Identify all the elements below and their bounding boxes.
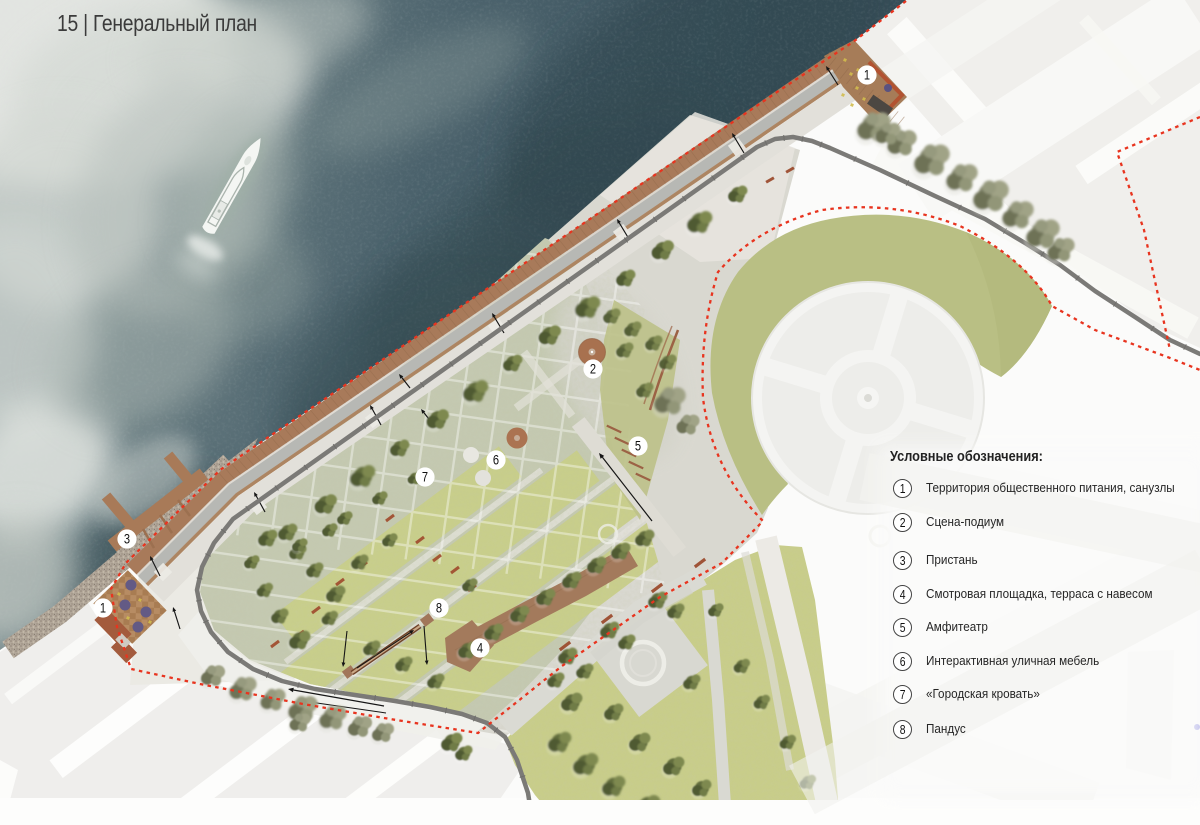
svg-text:6: 6 bbox=[493, 452, 499, 467]
svg-text:8: 8 bbox=[436, 600, 442, 615]
svg-text:3: 3 bbox=[124, 531, 130, 546]
svg-text:2: 2 bbox=[590, 361, 596, 376]
svg-text:4: 4 bbox=[477, 640, 483, 655]
svg-text:7: 7 bbox=[422, 469, 428, 484]
svg-text:1: 1 bbox=[864, 67, 870, 82]
svg-text:1: 1 bbox=[100, 600, 106, 615]
svg-text:5: 5 bbox=[635, 438, 641, 453]
